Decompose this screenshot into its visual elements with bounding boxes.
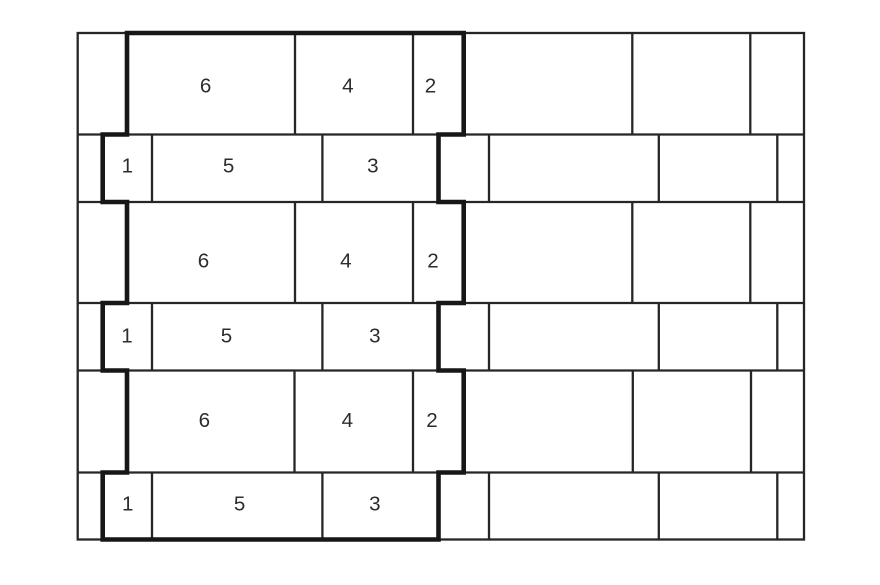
svg-text:4: 4: [340, 249, 351, 272]
svg-text:1: 1: [121, 325, 132, 348]
svg-text:3: 3: [367, 155, 378, 178]
svg-text:6: 6: [199, 409, 210, 432]
svg-text:6: 6: [198, 249, 209, 272]
svg-text:2: 2: [427, 249, 438, 272]
svg-text:5: 5: [221, 325, 232, 348]
svg-text:3: 3: [369, 492, 380, 515]
svg-text:2: 2: [426, 409, 437, 432]
svg-text:3: 3: [369, 325, 380, 348]
svg-text:6: 6: [200, 74, 211, 97]
svg-text:1: 1: [122, 492, 133, 515]
svg-text:5: 5: [223, 155, 234, 178]
svg-text:5: 5: [234, 492, 245, 515]
svg-text:4: 4: [342, 409, 353, 432]
svg-text:4: 4: [342, 74, 353, 97]
svg-text:1: 1: [122, 155, 133, 178]
svg-text:2: 2: [425, 74, 436, 97]
